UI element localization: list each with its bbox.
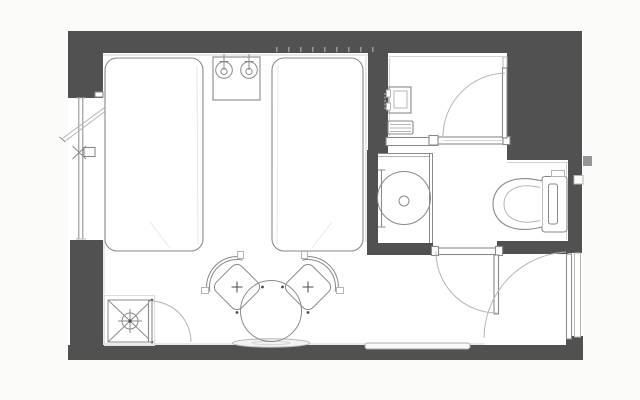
bed-right bbox=[272, 58, 363, 251]
chair-ear bbox=[202, 288, 209, 294]
wall-shower-left bbox=[367, 150, 378, 255]
wall-top-left-chunk bbox=[68, 31, 103, 98]
wall-panel bbox=[385, 87, 411, 113]
wall-ledge bbox=[233, 339, 310, 347]
door-leaf bbox=[494, 255, 499, 314]
flush-button bbox=[552, 171, 565, 177]
door-leaf bbox=[503, 68, 508, 138]
wall-left-bottom bbox=[70, 240, 103, 347]
nightstand bbox=[213, 57, 260, 100]
wall-right bbox=[568, 160, 582, 253]
door-leaf bbox=[149, 301, 153, 342]
threshold-strip bbox=[365, 343, 470, 349]
door-threshold bbox=[438, 248, 497, 255]
chair-ear bbox=[337, 288, 344, 294]
floor-plan bbox=[0, 0, 640, 400]
door-hinge-block bbox=[432, 247, 439, 256]
chair-ear bbox=[302, 252, 308, 259]
door-leaf bbox=[567, 254, 572, 339]
wall-niche bbox=[574, 176, 583, 185]
wall-tick-detail bbox=[95, 92, 103, 97]
door-hinge-block bbox=[429, 136, 438, 146]
wall-nub-right bbox=[583, 156, 592, 166]
wall-divider-upper bbox=[368, 31, 388, 153]
door-frame bbox=[575, 253, 581, 337]
door-hinge-block bbox=[496, 247, 503, 256]
casement-foot bbox=[60, 137, 66, 142]
wall-bath-bottom-left bbox=[367, 243, 433, 255]
step-box bbox=[388, 121, 413, 134]
wall-bottom bbox=[68, 345, 583, 360]
wall-right-chunk bbox=[507, 53, 582, 160]
bed-left bbox=[105, 58, 203, 251]
chair-ear bbox=[238, 252, 244, 259]
wall-bath-bottom-right bbox=[497, 241, 568, 254]
